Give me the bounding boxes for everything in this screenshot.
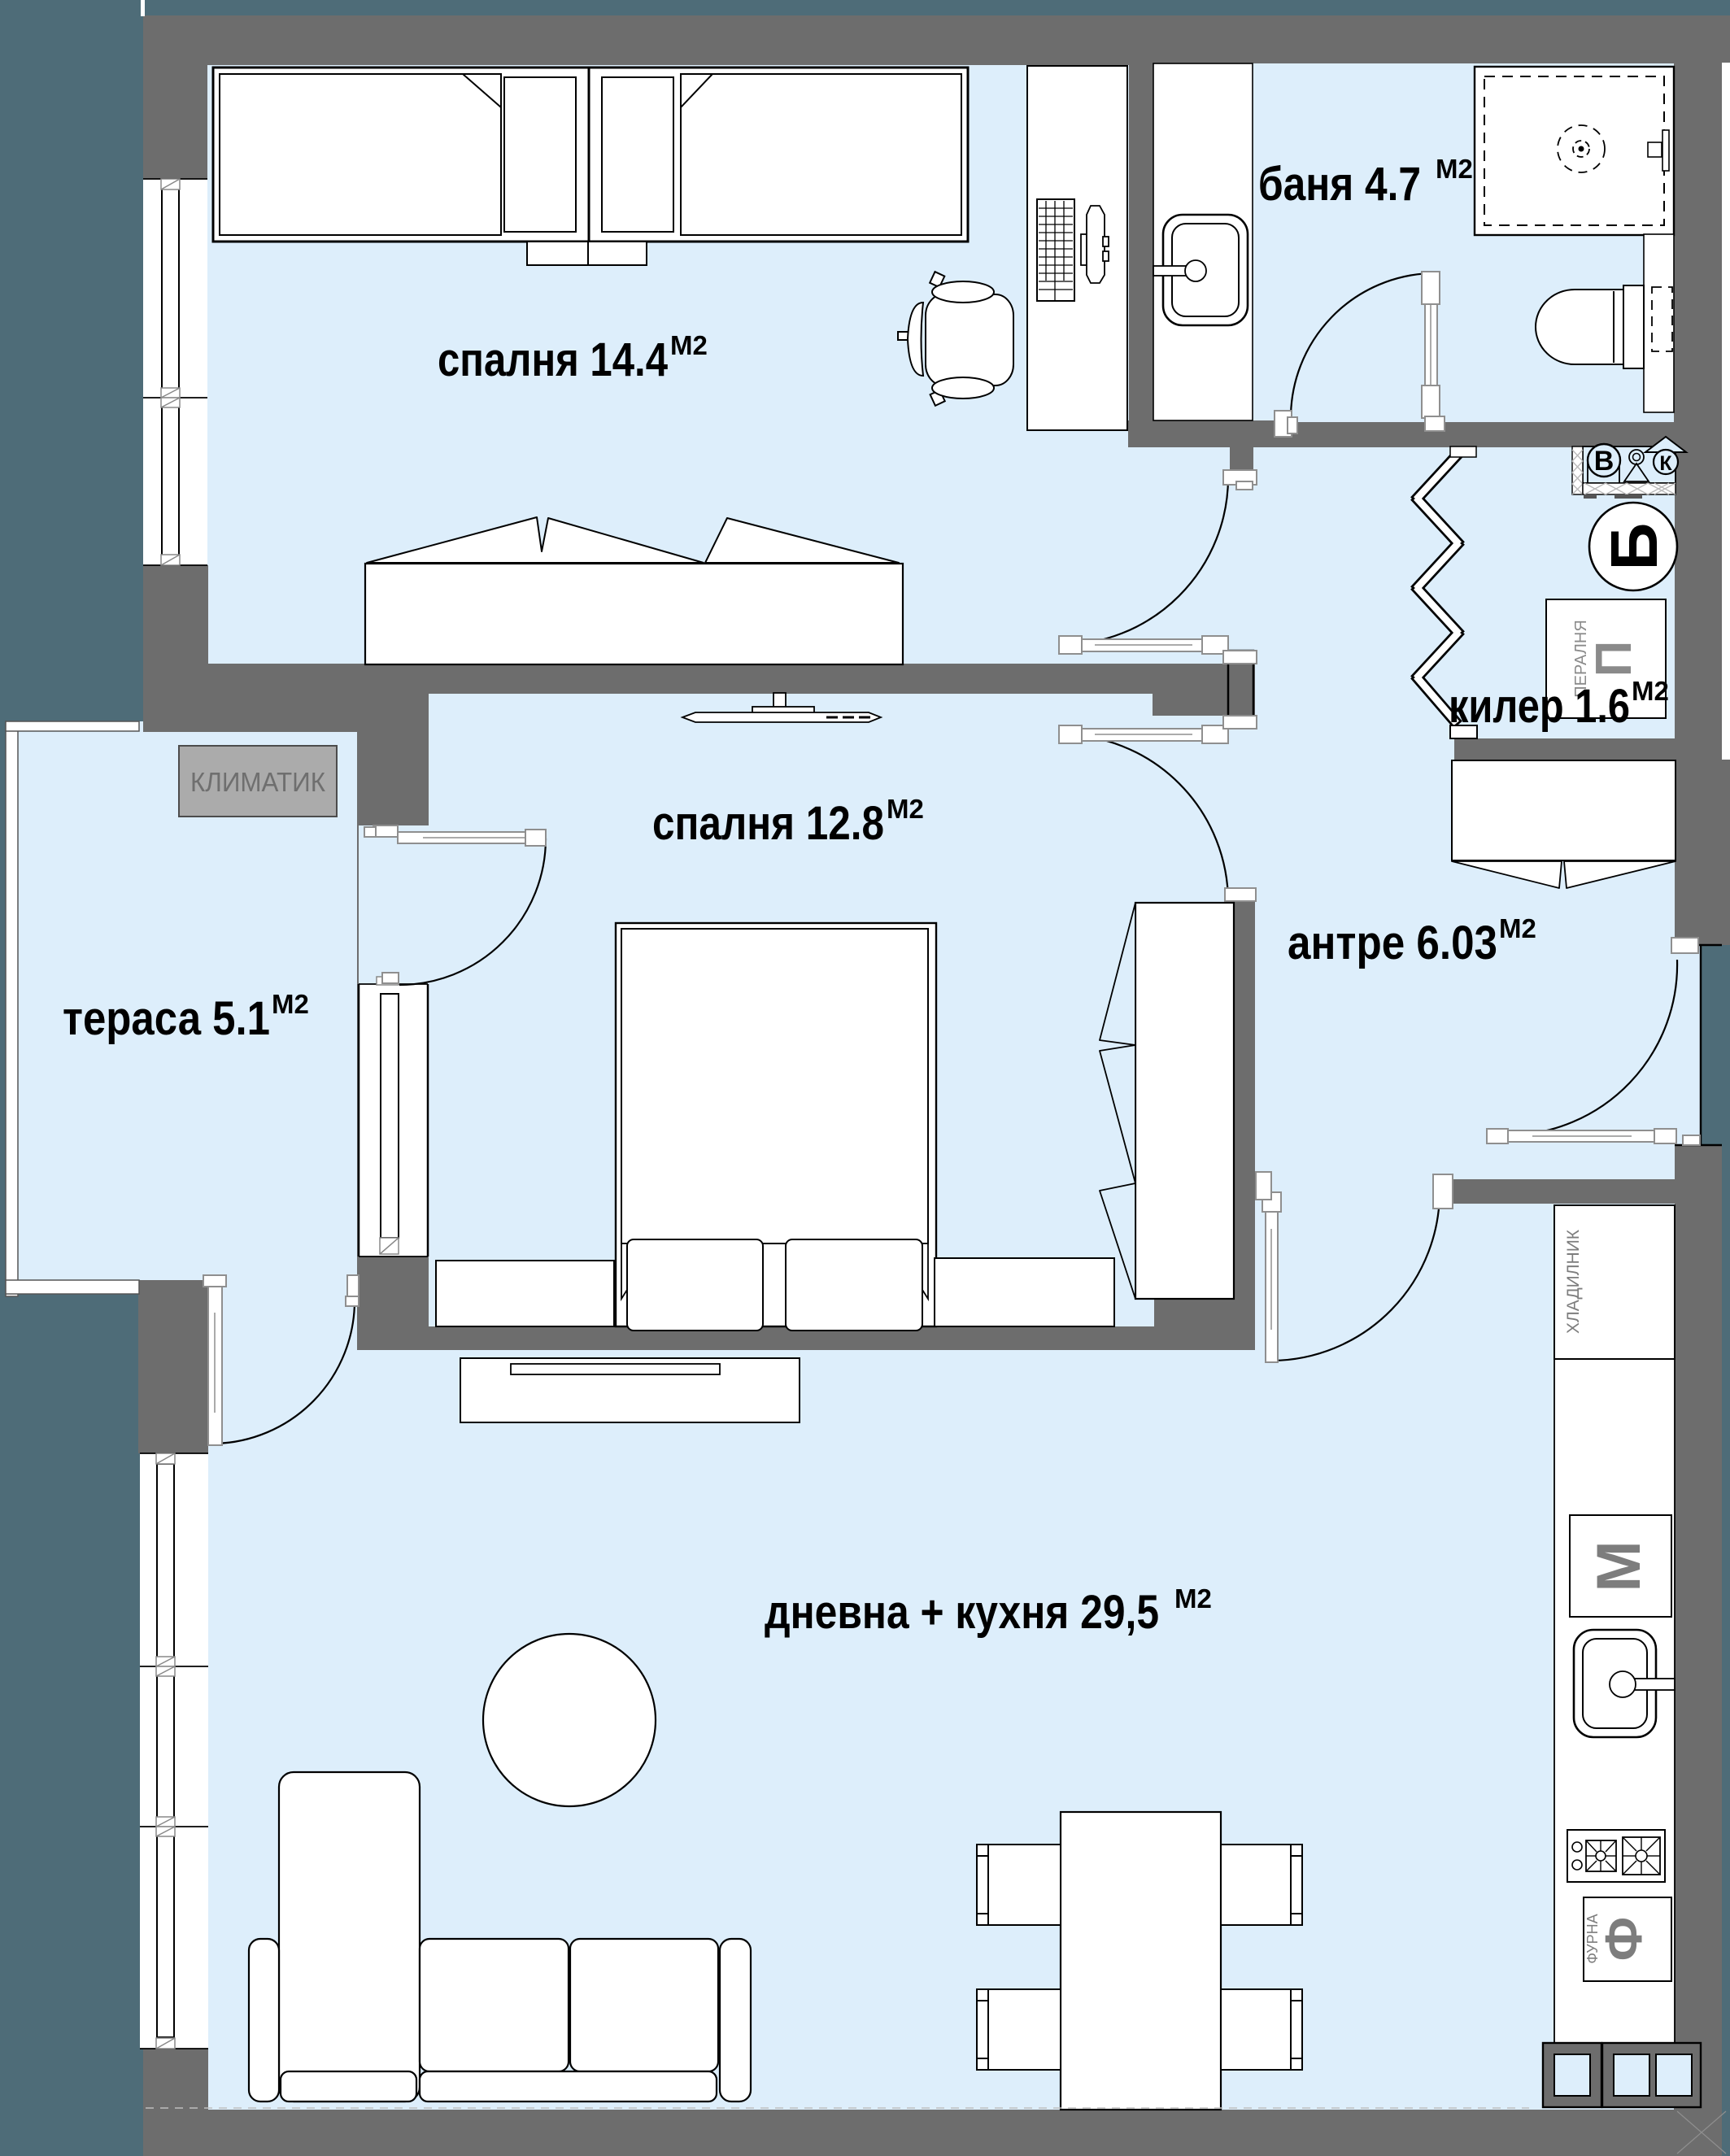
svg-text:М2: М2	[887, 794, 924, 824]
svg-text:М2: М2	[1436, 154, 1473, 184]
svg-text:М: М	[1584, 1540, 1654, 1592]
svg-text:Б: Б	[1597, 523, 1671, 571]
svg-text:спалня 14.4: спалня 14.4	[438, 333, 668, 386]
svg-text:спалня 12.8: спалня 12.8	[652, 797, 884, 850]
svg-text:М2: М2	[1174, 1583, 1212, 1614]
svg-text:Ф: Ф	[1594, 1917, 1653, 1962]
svg-text:баня 4.7: баня 4.7	[1258, 158, 1421, 211]
svg-text:КЛИМАТИК: КЛИМАТИК	[190, 767, 326, 797]
svg-text:М2: М2	[670, 330, 708, 360]
svg-text:М2: М2	[1499, 913, 1536, 943]
svg-text:П: П	[1586, 641, 1642, 677]
svg-text:тераса 5.1: тераса 5.1	[63, 992, 270, 1045]
svg-text:В: В	[1594, 446, 1615, 477]
svg-text:ХЛАДИЛНИК: ХЛАДИЛНИК	[1564, 1229, 1583, 1334]
svg-text:дневна + кухня 29,5: дневна + кухня 29,5	[765, 1586, 1159, 1639]
svg-text:антре 6.03: антре 6.03	[1288, 917, 1497, 969]
svg-text:килер 1.6: килер 1.6	[1449, 680, 1630, 733]
svg-text:М2: М2	[1632, 676, 1669, 706]
svg-text:К: К	[1659, 452, 1672, 475]
svg-text:М2: М2	[272, 989, 309, 1019]
